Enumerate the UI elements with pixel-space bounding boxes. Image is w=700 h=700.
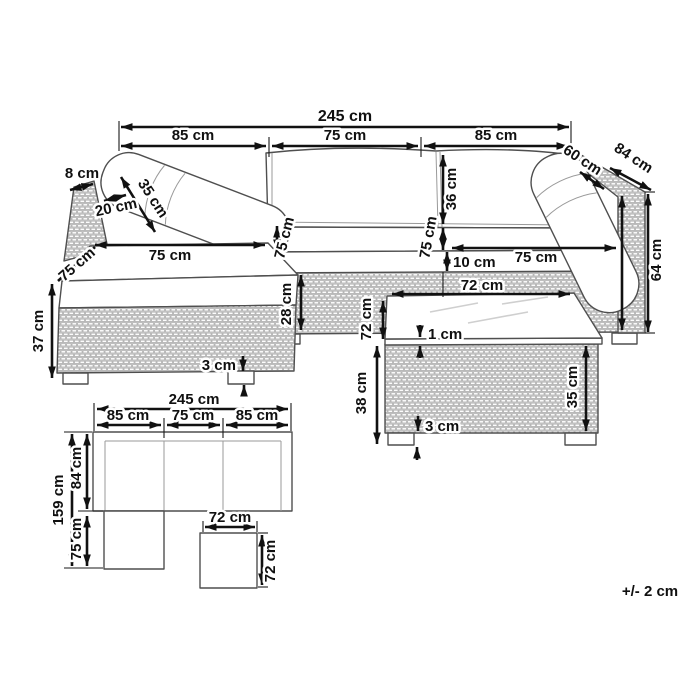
label-chaise-height: 37 cm — [30, 310, 47, 353]
plan-label-center: 75 cm — [172, 407, 215, 424]
label-table-width: 72 cm — [461, 277, 504, 294]
chaise-foot-left — [63, 373, 88, 384]
label-table-height: 38 cm — [353, 372, 370, 415]
chaise-cushion-front — [59, 275, 298, 308]
label-glass-thickness: 1 cm — [428, 326, 462, 343]
label-corner-cushion-depth: 20 cm — [93, 195, 138, 220]
label-sofa-foot: 3 cm — [202, 357, 236, 374]
label-table-base-height: 35 cm — [564, 366, 581, 409]
plan-table-outline — [200, 533, 257, 588]
tolerance-note: +/- 2 cm — [622, 583, 678, 600]
label-base-height: 28 cm — [278, 283, 295, 326]
plan-label-table-depth: 72 cm — [262, 540, 279, 583]
plan-sofa-outline — [93, 432, 292, 511]
plan-chaise-outline — [104, 511, 164, 569]
plan-label-right: 85 cm — [236, 407, 279, 424]
label-table-foot: 3 cm — [425, 418, 459, 435]
label-chaise-width: 75 cm — [149, 247, 192, 264]
plan-label-chaise-ext: 75 cm — [68, 518, 85, 561]
label-seat-thickness: 10 cm — [453, 254, 496, 271]
label-total-height: 64 cm — [648, 239, 665, 282]
sofa-foot-right — [612, 333, 637, 344]
table-foot-right — [565, 433, 596, 445]
diagram-canvas: 245 cm 85 cm 75 cm 85 cm 8 cm 35 cm 20 c… — [0, 0, 700, 700]
label-top-right: 85 cm — [475, 127, 518, 144]
label-backrest-height: 36 cm — [443, 168, 460, 211]
label-total-width: 245 cm — [318, 108, 372, 125]
plan-view: 245 cm 85 cm 75 cm 85 cm 159 cm 84 cm 75… — [50, 391, 292, 588]
label-right-seat-width: 75 cm — [515, 249, 558, 266]
chaise-base — [57, 305, 296, 373]
glass-top — [385, 293, 602, 339]
plan-label-table-width: 72 cm — [209, 509, 252, 526]
table-foot-left — [388, 433, 414, 445]
label-table-depth: 72 cm — [358, 298, 375, 341]
label-top-left: 85 cm — [172, 127, 215, 144]
backrest-cushions — [266, 148, 575, 228]
plan-label-total-depth: 159 cm — [50, 475, 67, 526]
dimension-diagram: 245 cm 85 cm 75 cm 85 cm 8 cm 35 cm 20 c… — [0, 0, 700, 700]
label-top-center: 75 cm — [324, 127, 367, 144]
plan-label-total-width: 245 cm — [169, 391, 220, 408]
label-armrest: 8 cm — [65, 165, 99, 182]
plan-label-left: 85 cm — [107, 407, 150, 424]
plan-label-sofa-depth: 84 cm — [68, 447, 85, 490]
